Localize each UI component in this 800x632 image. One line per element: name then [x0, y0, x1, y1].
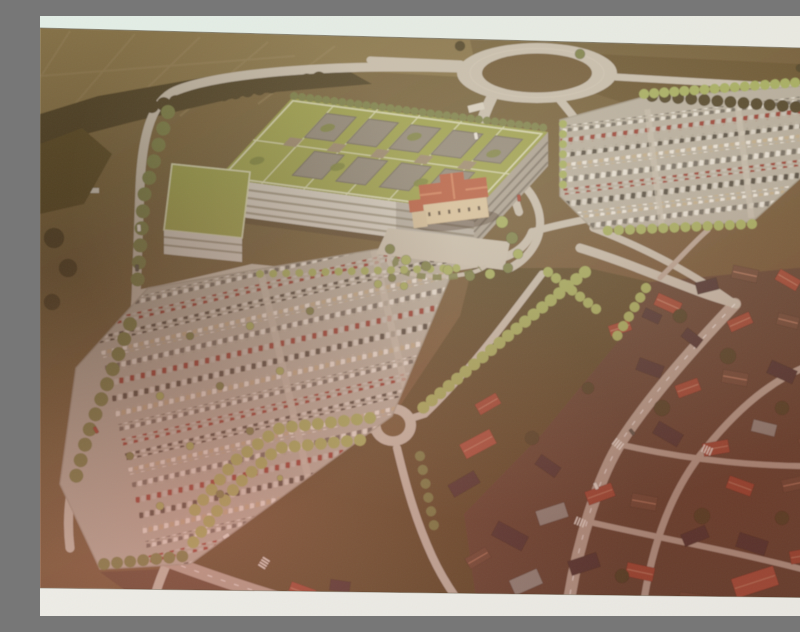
film-grain [40, 16, 800, 616]
aerial-rendering-photo [40, 16, 800, 616]
rendering-canvas [40, 16, 800, 616]
